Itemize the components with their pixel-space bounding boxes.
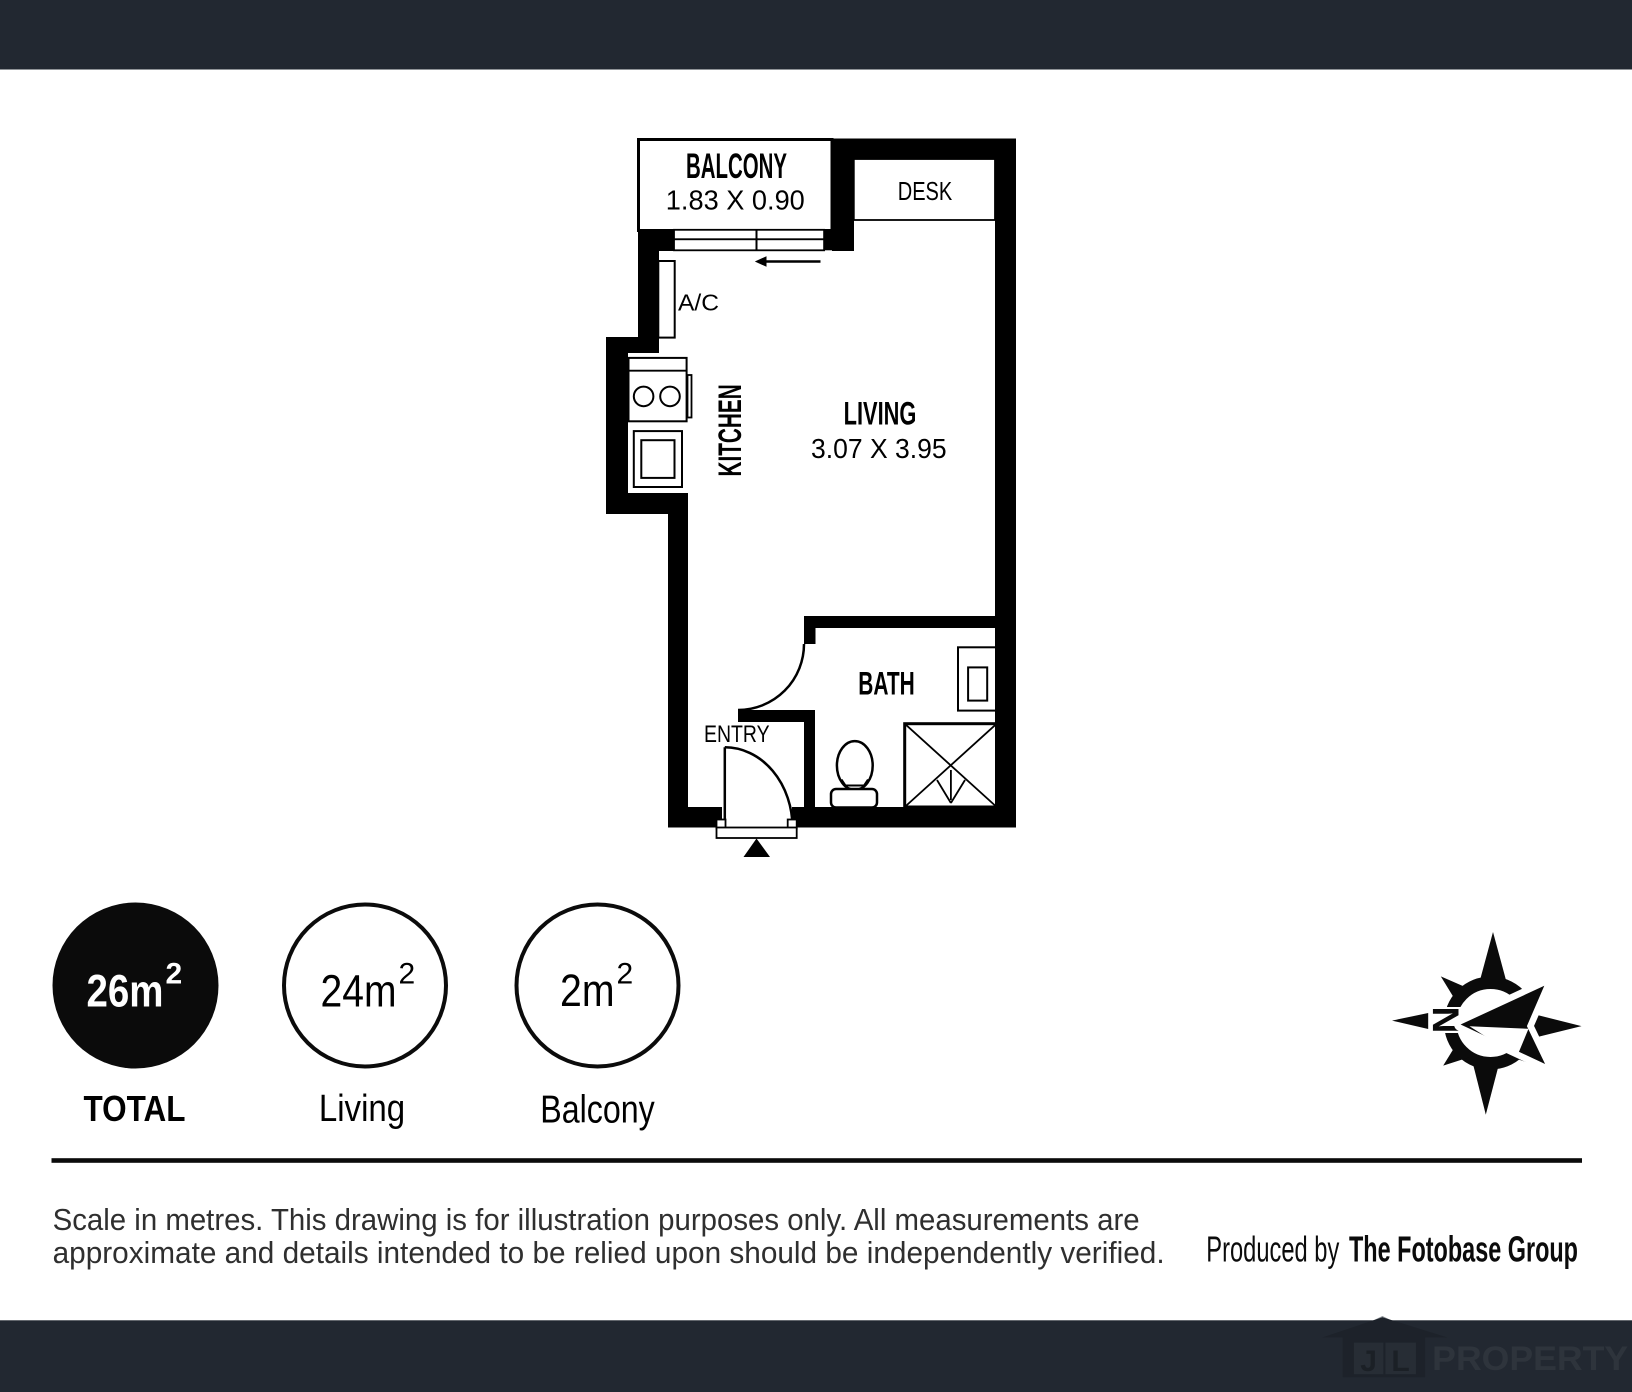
svg-text:The Fotobase Group: The Fotobase Group bbox=[1349, 1229, 1578, 1270]
svg-text:Living: Living bbox=[319, 1088, 405, 1130]
svg-text:Produced by: Produced by bbox=[1206, 1229, 1339, 1270]
svg-text:approximate and details intend: approximate and details intended to be r… bbox=[53, 1235, 1165, 1270]
svg-text:BATH: BATH bbox=[858, 666, 915, 702]
svg-text:A/C: A/C bbox=[678, 290, 719, 316]
svg-text:BALCONY: BALCONY bbox=[686, 147, 787, 186]
svg-text:TOTAL: TOTAL bbox=[84, 1088, 186, 1129]
svg-text:L: L bbox=[1391, 1345, 1409, 1378]
svg-text:2: 2 bbox=[166, 958, 183, 991]
svg-text:24m: 24m bbox=[321, 966, 397, 1017]
svg-text:ENTRY: ENTRY bbox=[704, 721, 770, 748]
svg-text:3.07 X 3.95: 3.07 X 3.95 bbox=[811, 433, 947, 464]
svg-text:2: 2 bbox=[617, 958, 634, 991]
svg-text:LIVING: LIVING bbox=[844, 395, 917, 431]
svg-text:J: J bbox=[1360, 1345, 1377, 1378]
svg-text:1.83 X 0.90: 1.83 X 0.90 bbox=[666, 185, 805, 216]
svg-text:DESK: DESK bbox=[898, 178, 953, 206]
svg-text:26m: 26m bbox=[87, 966, 164, 1017]
svg-text:2m: 2m bbox=[560, 965, 615, 1016]
svg-text:PROPERTY: PROPERTY bbox=[1432, 1340, 1628, 1378]
svg-text:Scale in metres. This drawing: Scale in metres. This drawing is for ill… bbox=[53, 1202, 1140, 1237]
svg-text:Balcony: Balcony bbox=[540, 1089, 655, 1132]
svg-text:2: 2 bbox=[399, 958, 416, 991]
svg-text:KITCHEN: KITCHEN bbox=[712, 384, 748, 476]
